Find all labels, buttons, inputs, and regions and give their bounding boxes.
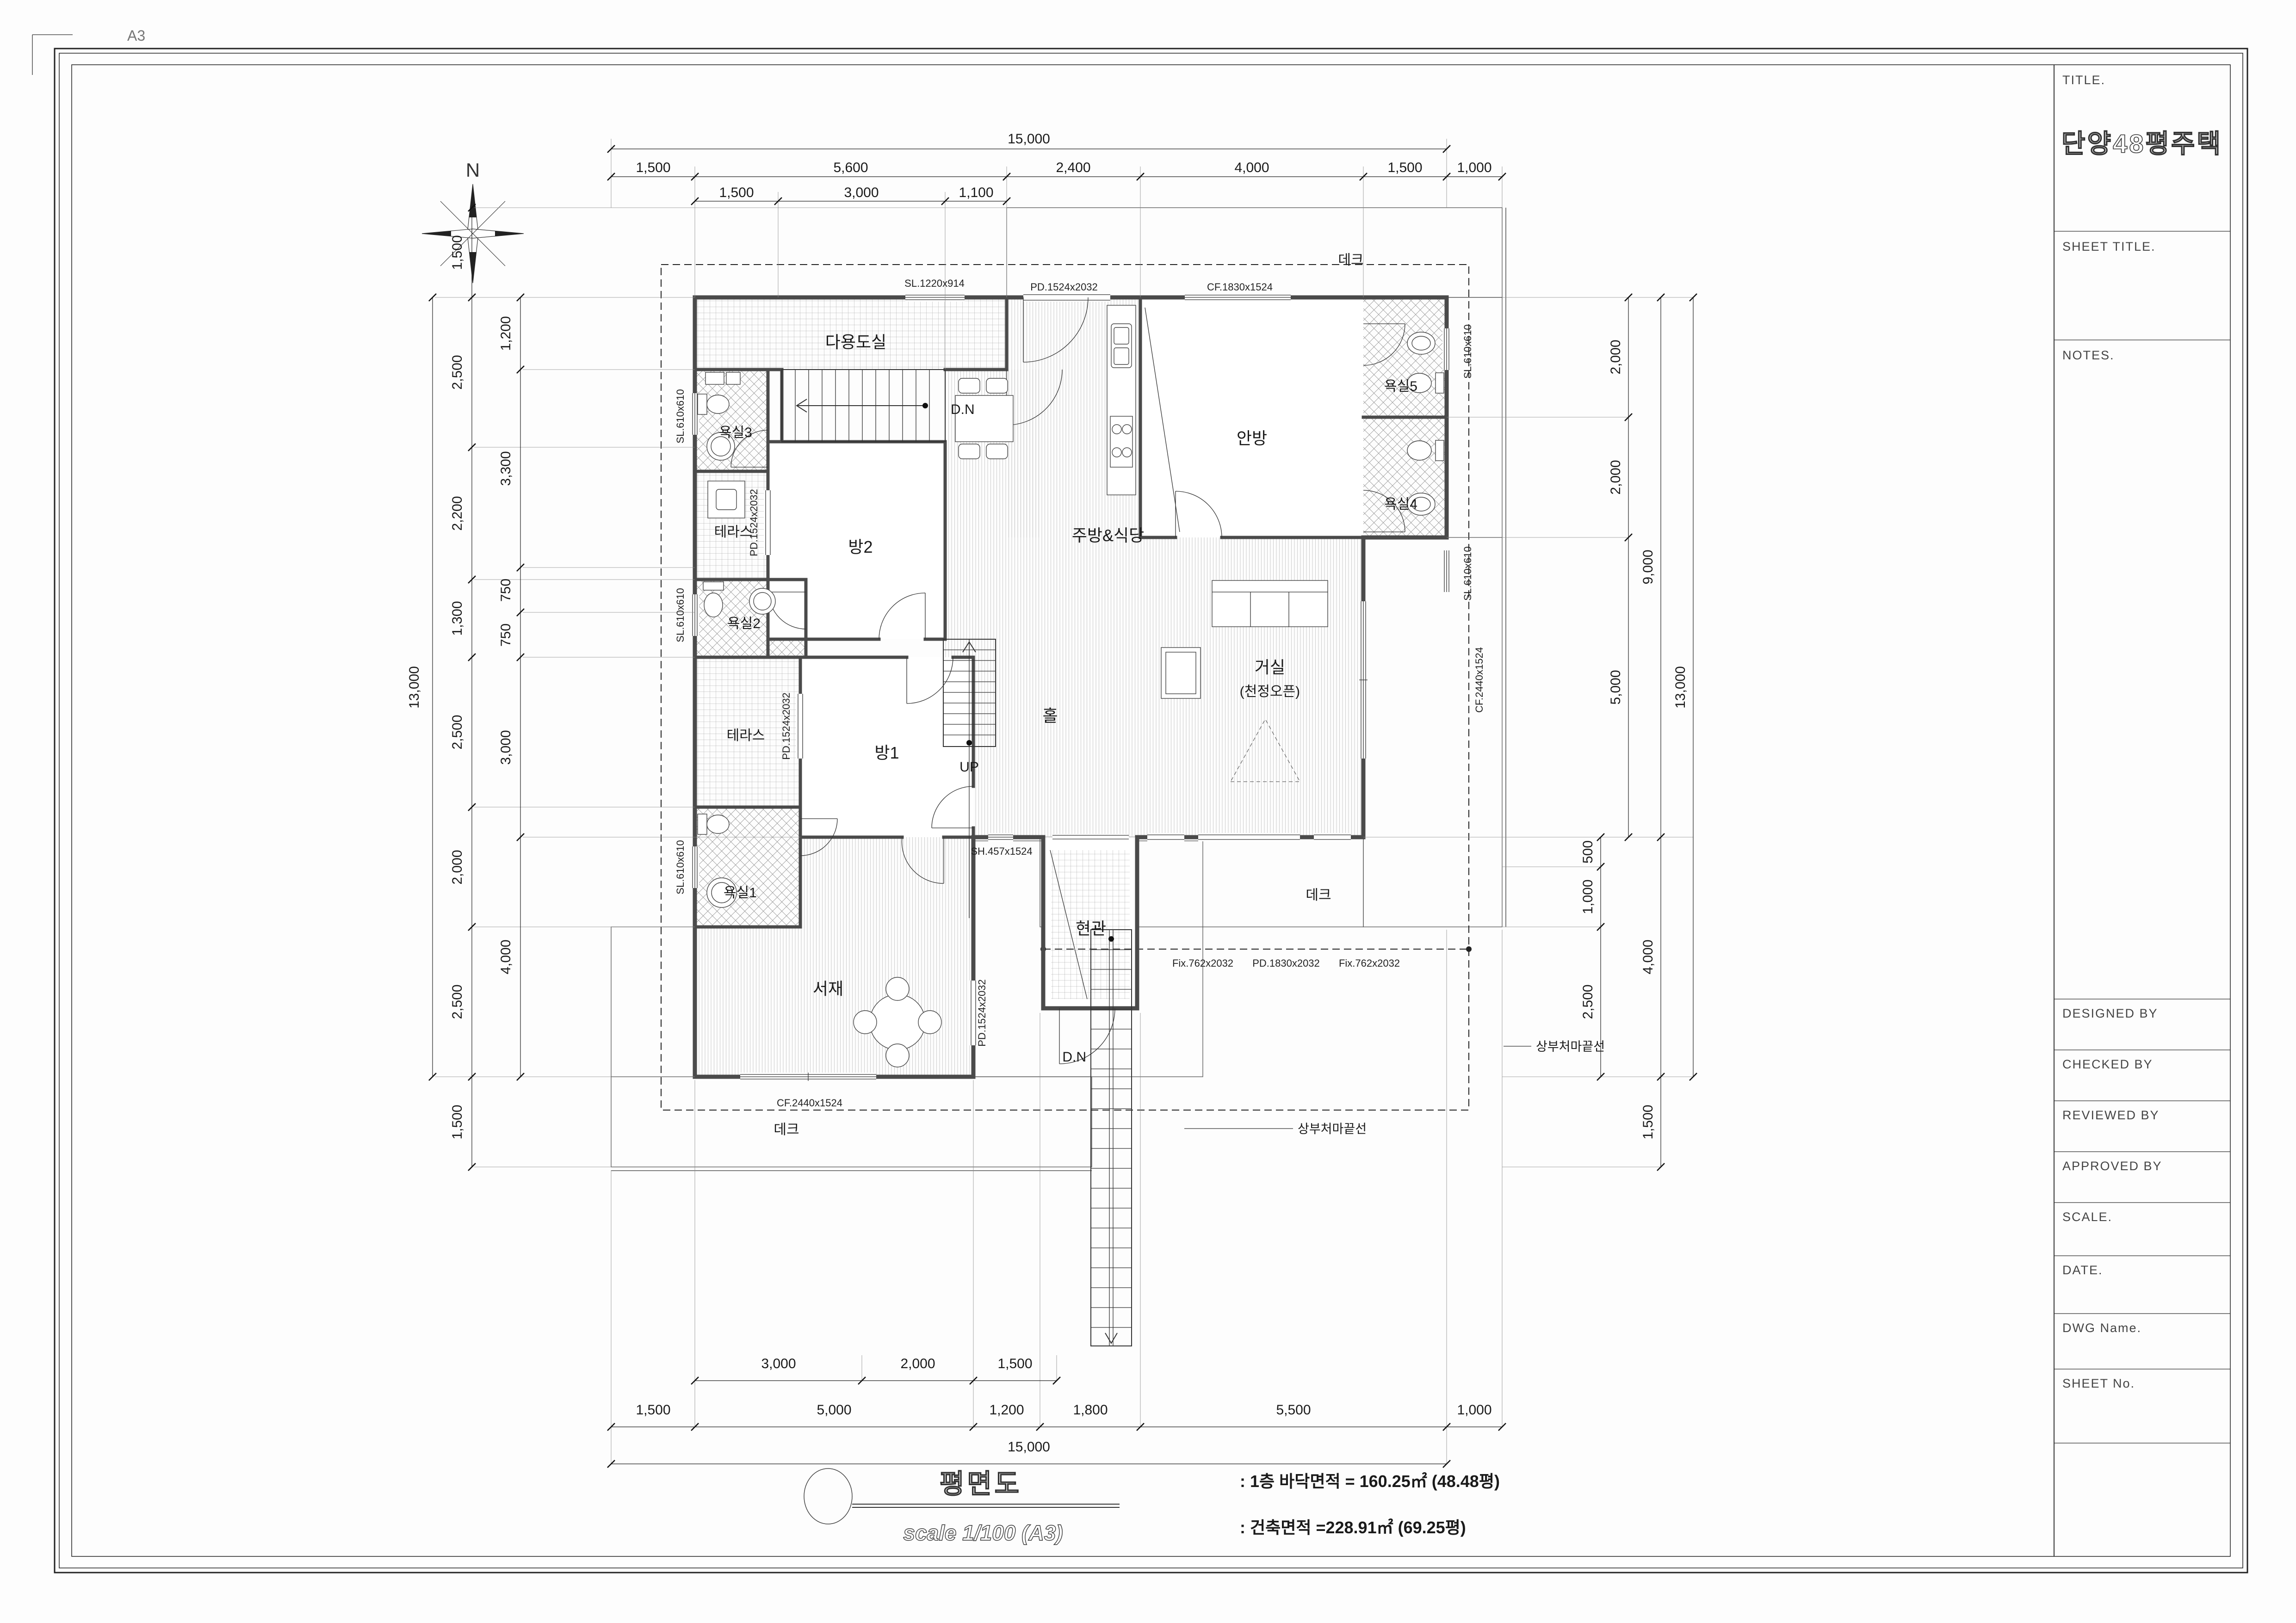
dim-label: 3,000: [498, 730, 514, 765]
dim-label: 4,000: [498, 939, 514, 974]
window-label: SL.610x610: [1462, 324, 1473, 378]
dim-label: 5,000: [817, 1402, 851, 1418]
eave-leaders: [1184, 1046, 1531, 1129]
window-label: SL.610x610: [675, 840, 686, 894]
deck-label-bottom-left: 데크: [774, 1122, 799, 1137]
floor-area-text: : 1층 바닥면적 = 160.25㎡ (48.48평): [1240, 1472, 1500, 1491]
window-label: SL.1220x914: [904, 278, 965, 289]
dim-label: 5,000: [1608, 670, 1623, 704]
floor-finishes: [695, 297, 1447, 1077]
deck-label-bottom-right: 데크: [1306, 888, 1331, 903]
title-block-field: APPROVED BY: [2062, 1159, 2162, 1173]
dim-label: 2,000: [1608, 339, 1623, 374]
dim-label: 1,500: [1640, 1105, 1656, 1139]
door-label: PD.1524x2032: [780, 692, 792, 760]
dim-label: 1,000: [1580, 879, 1596, 914]
dim-label: 2,500: [450, 715, 465, 749]
drawing-scale: scale 1/100 (A3): [903, 1521, 1063, 1545]
title-block-field: REVIEWED BY: [2062, 1108, 2160, 1122]
north-arrow-icon: [422, 184, 524, 283]
dim-label: 2,000: [450, 850, 465, 884]
window-label: CF.2440x1524: [1473, 647, 1485, 713]
title-block: TITLE. 단양48평주택 SHEET TITLE. NOTES. DESIG…: [2054, 65, 2230, 1556]
room-label-room1: 방1: [874, 743, 899, 762]
dim-label: 2,500: [1580, 984, 1596, 1019]
room-label-bath1: 욕실1: [724, 885, 757, 901]
dim-label: 5,600: [833, 160, 868, 175]
stair-up-label: UP: [959, 759, 979, 775]
north-label: N: [466, 159, 480, 181]
title-block-field: DESIGNED BY: [2062, 1006, 2158, 1020]
dim-label: 1,500: [1387, 160, 1422, 175]
dim-label: 1,500: [450, 235, 465, 270]
dim-label: 2,500: [450, 984, 465, 1019]
eave-annotation-right: 상부처마끝선: [1536, 1040, 1605, 1054]
deck-label-top: 데크: [1338, 253, 1363, 268]
dim-label: 2,400: [1056, 160, 1090, 175]
dim-label: 500: [1580, 840, 1596, 864]
window-label: Fix.762x2032: [1172, 957, 1233, 969]
room-label-utility: 다용도실: [825, 333, 886, 352]
project-title: 단양48평주택: [2061, 129, 2222, 158]
room-label-entrance: 현관: [1076, 919, 1106, 938]
dim-label: 1,500: [719, 185, 754, 200]
title-block-title-label: TITLE.: [2062, 73, 2105, 87]
room-label-master: 안방: [1237, 429, 1267, 448]
window-label: CF.2440x1524: [777, 1097, 842, 1109]
dim-label: 1,200: [989, 1402, 1024, 1418]
room-label-bath2: 욕실2: [727, 616, 761, 631]
dim-label: 3,000: [761, 1356, 796, 1371]
room-label-hall: 홀: [1042, 706, 1058, 725]
dim-label: 4,000: [1234, 160, 1269, 175]
drawing-title-block: 평면도 scale 1/100 (A3) : 1층 바닥면적 = 160.25㎡…: [804, 1469, 1500, 1545]
drawing-sheet: A3 N: [0, 0, 2296, 1623]
room-label-living: 거실: [1255, 658, 1285, 677]
title-block-field: DWG Name.: [2062, 1321, 2141, 1335]
floor-plan-drawing: A3 N: [0, 0, 2296, 1623]
title-block-field: DATE.: [2062, 1263, 2103, 1277]
window-label: Fix.762x2032: [1339, 957, 1400, 969]
dim-label: 1,100: [959, 185, 993, 200]
building-area-text: : 건축면적 =228.91㎡ (69.25평): [1240, 1518, 1466, 1537]
dim-label: 2,000: [1608, 460, 1623, 494]
dim-label: 2,000: [900, 1356, 935, 1371]
window-label: CF.1830x1524: [1207, 281, 1273, 293]
title-block-sheet-title-label: SHEET TITLE.: [2062, 240, 2156, 253]
dim-label: 3,000: [844, 185, 879, 200]
window-label: SL.610x610: [675, 588, 686, 642]
dim-label: 4,000: [1640, 939, 1656, 974]
room-label-bath4: 욕실4: [1384, 497, 1417, 512]
dim-label: 2,500: [450, 355, 465, 389]
eave-annotation-bottom: 상부처마끝선: [1298, 1122, 1367, 1136]
room-label-study: 서재: [813, 979, 843, 998]
dim-label: 1,500: [636, 1402, 670, 1418]
dim-label: 5,500: [1276, 1402, 1311, 1418]
dim-label: 1,200: [498, 316, 514, 351]
dim-bottom-total: 15,000: [1008, 1439, 1050, 1455]
window-label: SL.610x610: [1462, 546, 1473, 600]
dim-label: 1,000: [1457, 160, 1491, 175]
room-label-bath5: 욕실5: [1384, 379, 1417, 394]
dim-label: 750: [498, 579, 514, 602]
drawing-name: 평면도: [940, 1469, 1022, 1499]
room-label-terrace1: 테라스: [714, 525, 753, 540]
dim-label: 2,200: [450, 496, 465, 531]
dim-label: 3,300: [498, 451, 514, 486]
room-label-room2: 방2: [848, 537, 873, 556]
dim-label: 1,800: [1073, 1402, 1108, 1418]
window-label: SL.610x610: [675, 389, 686, 443]
title-block-field: CHECKED BY: [2062, 1057, 2153, 1071]
dim-label: 1,000: [1457, 1402, 1491, 1418]
dim-label: 1,500: [997, 1356, 1032, 1371]
dim-top-total: 15,000: [1008, 131, 1050, 147]
door-label: PD.1524x2032: [748, 489, 760, 556]
door-label: PD.1524x2032: [1030, 281, 1098, 293]
room-label-living-note: (천정오픈): [1240, 684, 1300, 699]
dim-label: 750: [498, 623, 514, 647]
paper-size-label: A3: [127, 27, 145, 44]
stair-dn-ext-label: D.N: [1062, 1049, 1086, 1065]
dim-right-total: 13,000: [1673, 666, 1688, 709]
title-block-field: SHEET No.: [2062, 1376, 2135, 1390]
room-label-bath3: 욕실3: [719, 425, 752, 440]
dim-label: 1,300: [450, 601, 465, 636]
dim-left-total: 13,000: [407, 666, 422, 709]
door-label: PD.1830x2032: [1252, 957, 1320, 969]
door-label: PD.1524x2032: [976, 979, 988, 1047]
stair-dn-label: D.N: [951, 402, 975, 417]
title-block-field: SCALE.: [2062, 1210, 2112, 1224]
title-block-notes-label: NOTES.: [2062, 348, 2115, 362]
room-label-terrace2: 테라스: [727, 728, 765, 743]
dim-label: 1,500: [450, 1105, 465, 1139]
dim-label: 9,000: [1640, 549, 1656, 584]
dim-label: 1,500: [636, 160, 670, 175]
room-label-kitchen: 주방&식당: [1072, 526, 1145, 545]
window-label: SH.457x1524: [971, 845, 1032, 857]
